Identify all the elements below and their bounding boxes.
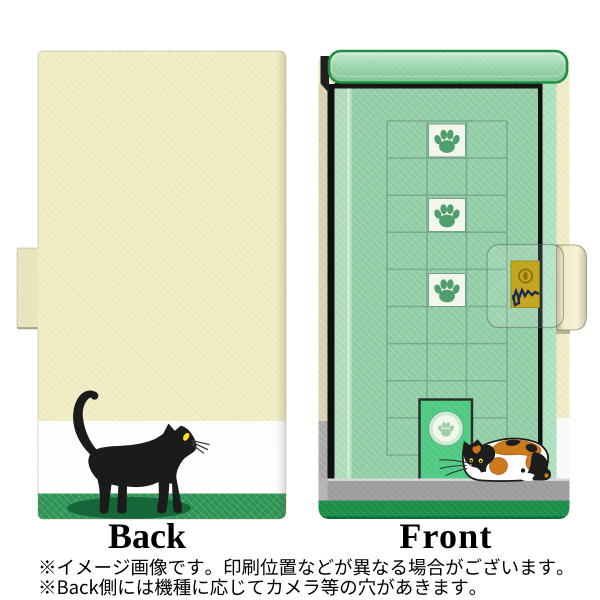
svg-text:Back: Back <box>108 516 186 556</box>
svg-text:Front: Front <box>399 516 492 556</box>
